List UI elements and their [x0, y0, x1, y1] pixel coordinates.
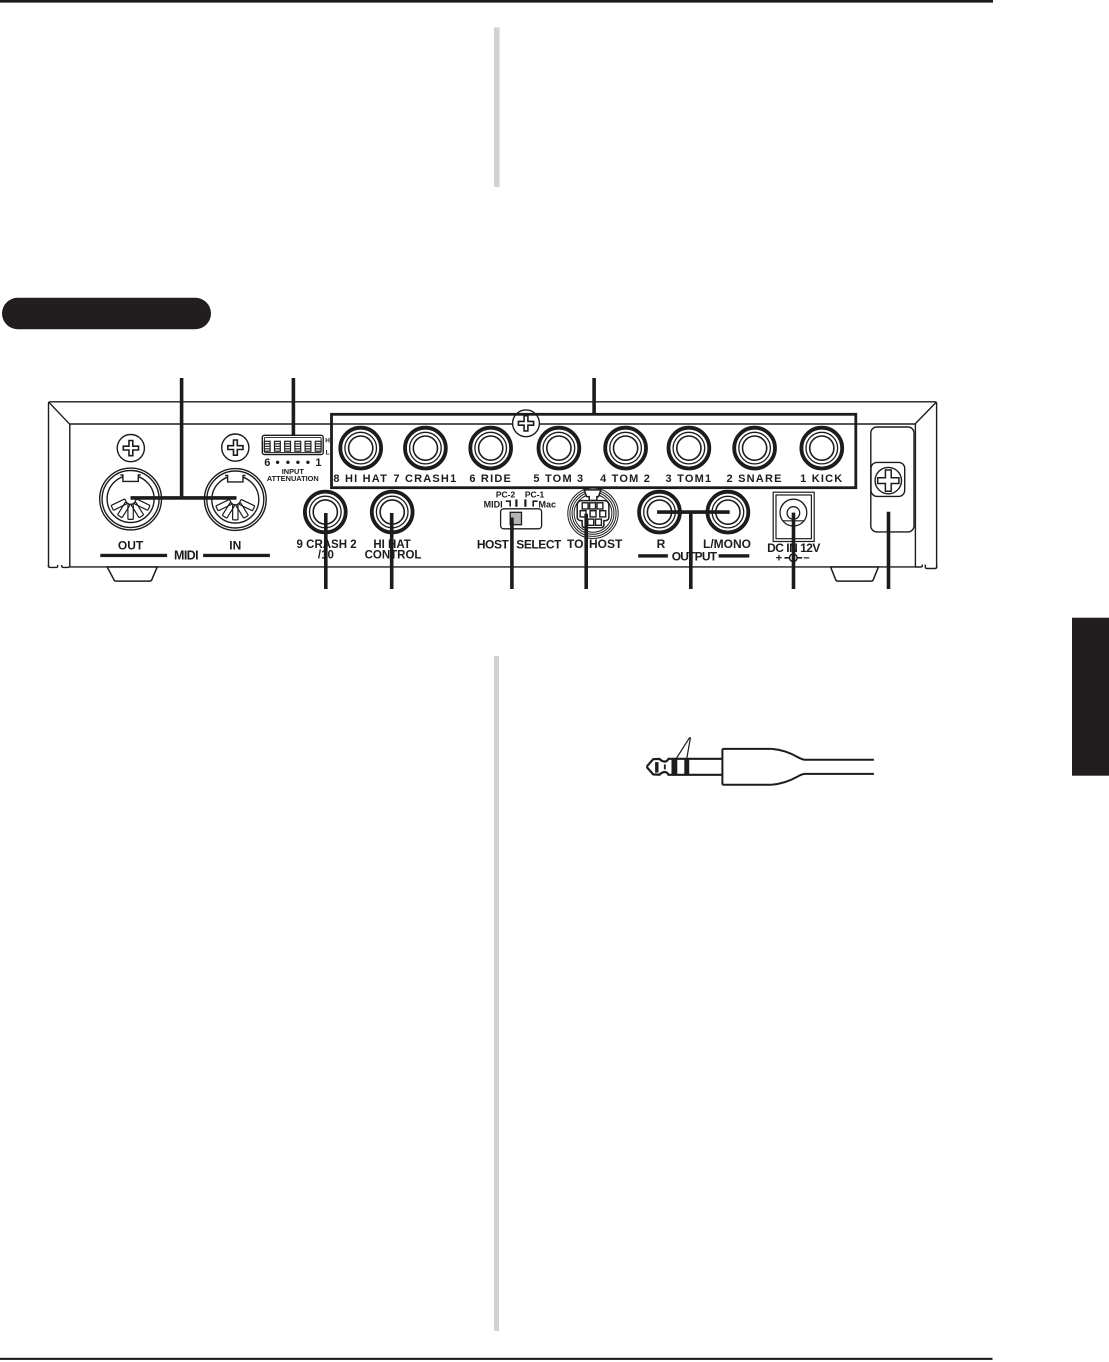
- svg-text:MIDI: MIDI: [174, 548, 198, 562]
- svg-text:PC-2: PC-2: [496, 489, 516, 499]
- svg-text:8 HI HAT: 8 HI HAT: [333, 473, 388, 485]
- svg-text:OUTPUT: OUTPUT: [672, 549, 718, 563]
- svg-text:1 KICK: 1 KICK: [800, 473, 843, 485]
- svg-text:HOST: HOST: [477, 538, 510, 552]
- svg-text:TO: TO: [567, 537, 583, 551]
- svg-text:PC-1: PC-1: [525, 489, 545, 499]
- svg-text:7 CRASH1: 7 CRASH1: [393, 473, 457, 485]
- svg-text:R: R: [657, 537, 666, 551]
- svg-text:4 TOM 2: 4 TOM 2: [600, 473, 651, 485]
- svg-text:1: 1: [315, 457, 321, 469]
- svg-text:+: +: [776, 553, 782, 565]
- svg-text:L: L: [326, 450, 330, 457]
- svg-text:Mac: Mac: [539, 499, 557, 509]
- svg-text:6 RIDE: 6 RIDE: [469, 473, 512, 485]
- svg-text:ATTENUATION: ATTENUATION: [267, 474, 319, 483]
- svg-text:−: −: [803, 553, 809, 565]
- svg-text:3 TOM1: 3 TOM1: [666, 473, 713, 485]
- svg-text:HOST: HOST: [589, 537, 623, 551]
- svg-text:SELECT: SELECT: [516, 538, 562, 552]
- svg-text:6: 6: [264, 457, 270, 469]
- svg-text:IN: IN: [229, 538, 241, 552]
- svg-text:MIDI: MIDI: [484, 499, 503, 509]
- svg-text:H: H: [325, 438, 330, 445]
- svg-text:2 SNARE: 2 SNARE: [727, 473, 783, 485]
- svg-text:5 TOM 3: 5 TOM 3: [533, 473, 584, 485]
- svg-text:OUT: OUT: [118, 538, 144, 552]
